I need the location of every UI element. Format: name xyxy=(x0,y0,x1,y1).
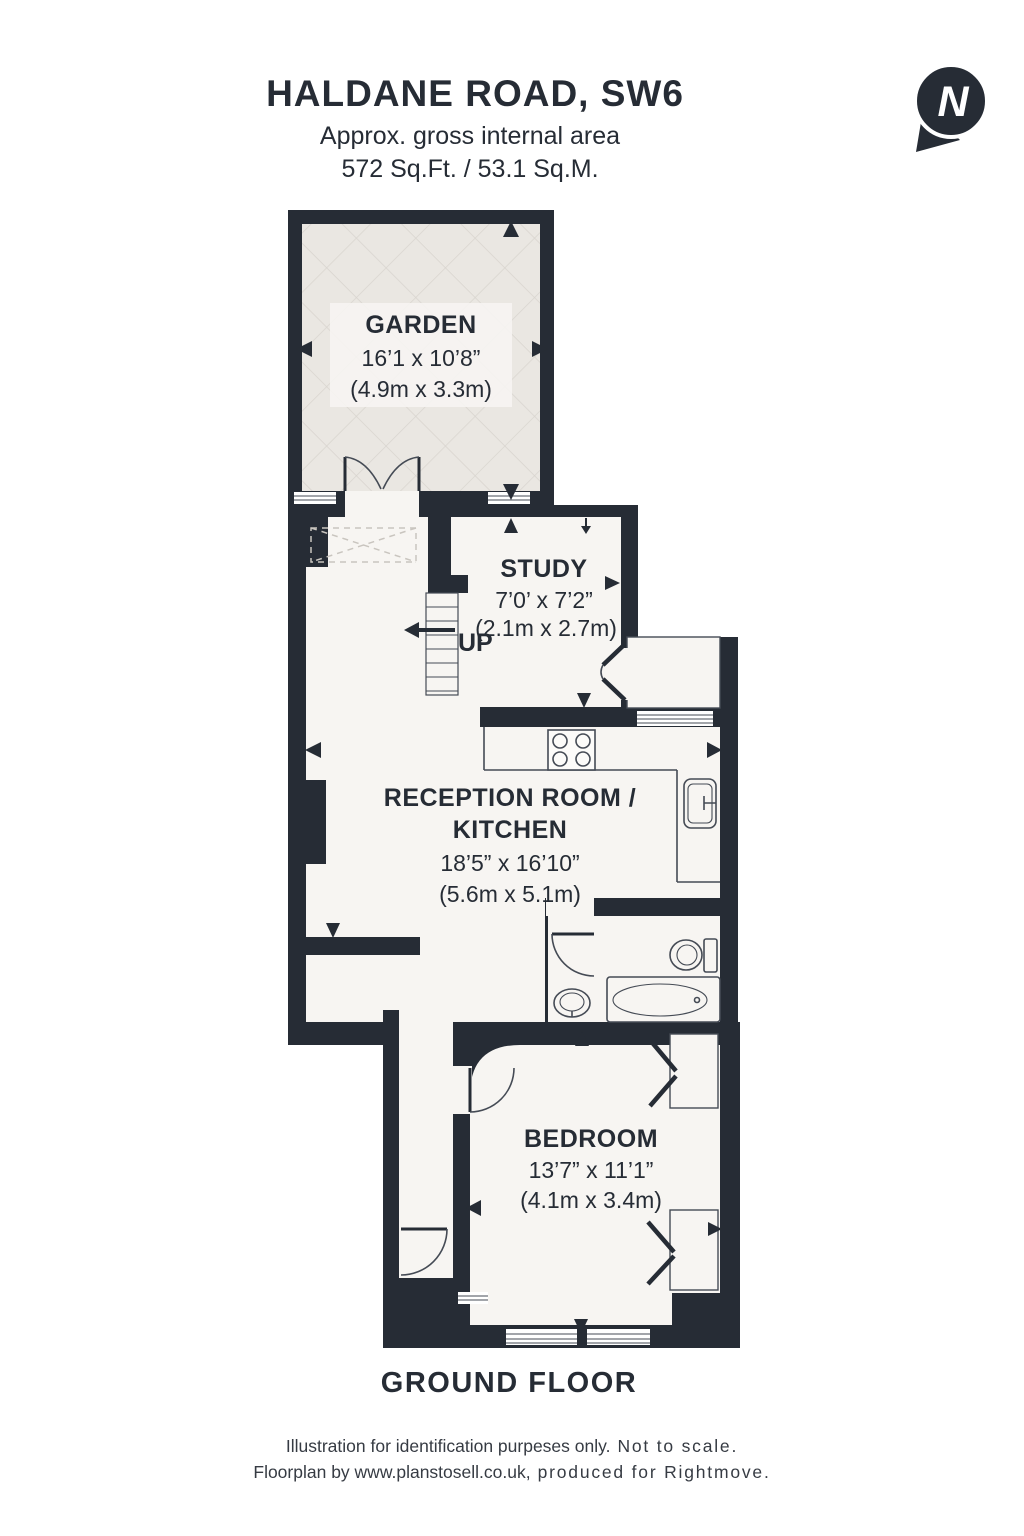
floorplan-canvas: UP xyxy=(0,0,1024,1536)
footer-line1-normal: Illustration for identification purpeses… xyxy=(286,1436,611,1456)
reception-dims-imperial: 18’5” x 16’10” xyxy=(440,850,579,876)
reception-name-line1: RECEPTION ROOM / xyxy=(384,784,636,812)
corridor-window xyxy=(458,1292,488,1304)
north-compass-icon: N xyxy=(915,65,987,152)
bedroom-window-right xyxy=(587,1329,650,1345)
bathroom-floor xyxy=(548,916,720,1022)
footer-line1: Illustration for identification purpeses… xyxy=(286,1436,738,1456)
garden-window xyxy=(294,492,336,504)
garden-name: GARDEN xyxy=(365,311,476,339)
study-dims-imperial: 7’0’ x 7’2” xyxy=(495,587,593,613)
bedroom-name: BEDROOM xyxy=(524,1125,658,1153)
bedroom-dims-metric: (4.1m x 3.4m) xyxy=(520,1187,662,1213)
page-title: HALDANE ROAD, SW6 xyxy=(266,73,684,114)
footer-line2: Floorplan by www.planstosell.co.uk,produ… xyxy=(253,1462,770,1482)
hob-icon xyxy=(548,730,595,770)
garden-door-opening xyxy=(345,491,419,518)
header: HALDANE ROAD, SW6 Approx. gross internal… xyxy=(266,73,684,183)
floor-label: GROUND FLOOR xyxy=(381,1367,637,1399)
subtitle-line2: 572 Sq.Ft. / 53.1 Sq.M. xyxy=(341,155,598,183)
corridor-floor xyxy=(399,1022,453,1278)
north-label: N xyxy=(937,78,969,126)
wardrobe-top xyxy=(670,1034,718,1108)
footer-line2-emphasis: produced for Rightmove. xyxy=(538,1462,771,1482)
footer-line1-emphasis: Not to scale. xyxy=(617,1436,738,1456)
study-dims-metric: (2.1m x 2.7m) xyxy=(475,615,617,641)
kitchen-window xyxy=(637,711,713,726)
footer-disclaimer: Illustration for identification purpeses… xyxy=(253,1436,770,1482)
entrance-porch-floor xyxy=(627,637,720,708)
garden-label: GARDEN 16’1 x 10’8” (4.9m x 3.3m) xyxy=(350,311,492,402)
study-name: STUDY xyxy=(500,555,587,583)
reception-dims-metric: (5.6m x 5.1m) xyxy=(439,881,581,907)
bedroom-window-left xyxy=(506,1329,577,1345)
reception-name-line2: KITCHEN xyxy=(453,816,568,844)
subtitle-line1: Approx. gross internal area xyxy=(320,122,620,150)
bedroom-label: BEDROOM 13’7” x 11’1” (4.1m x 3.4m) xyxy=(520,1125,662,1213)
footer-line2-normal: Floorplan by www.planstosell.co.uk, xyxy=(253,1462,530,1482)
wardrobe-bottom xyxy=(670,1210,718,1290)
bedroom-dims-imperial: 13’7” x 11’1” xyxy=(529,1157,654,1183)
garden-dims-imperial: 16’1 x 10’8” xyxy=(362,345,481,371)
garden-dims-metric: (4.9m x 3.3m) xyxy=(350,376,492,402)
floorplan-page: UP xyxy=(0,0,1024,1536)
